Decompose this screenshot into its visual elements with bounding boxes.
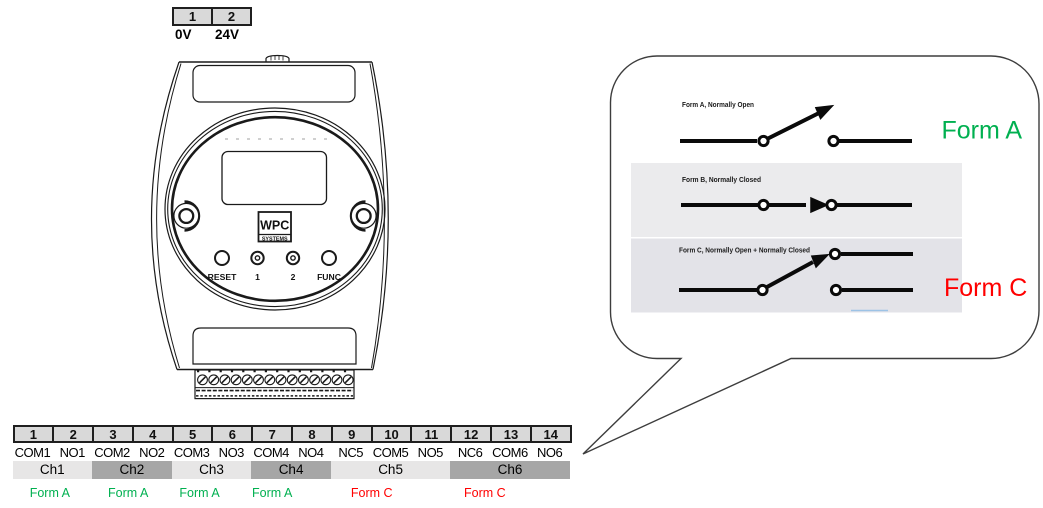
svg-text:SYSTEMS: SYSTEMS [262,236,288,242]
svg-text:2: 2 [291,272,296,282]
svg-text:RESET: RESET [208,272,237,282]
svg-text:1: 1 [255,272,260,282]
svg-text:Form C: Form C [944,274,1027,302]
svg-text:Form C, Normally Open + Normal: Form C, Normally Open + Normally Closed [679,246,810,255]
svg-text:Form A: Form A [942,116,1023,144]
svg-text:WPC: WPC [260,219,289,233]
svg-text:Form A, Normally Open: Form A, Normally Open [682,100,754,109]
svg-text:FUNC: FUNC [317,272,341,282]
svg-text:Form B, Normally Closed: Form B, Normally Closed [682,175,761,184]
